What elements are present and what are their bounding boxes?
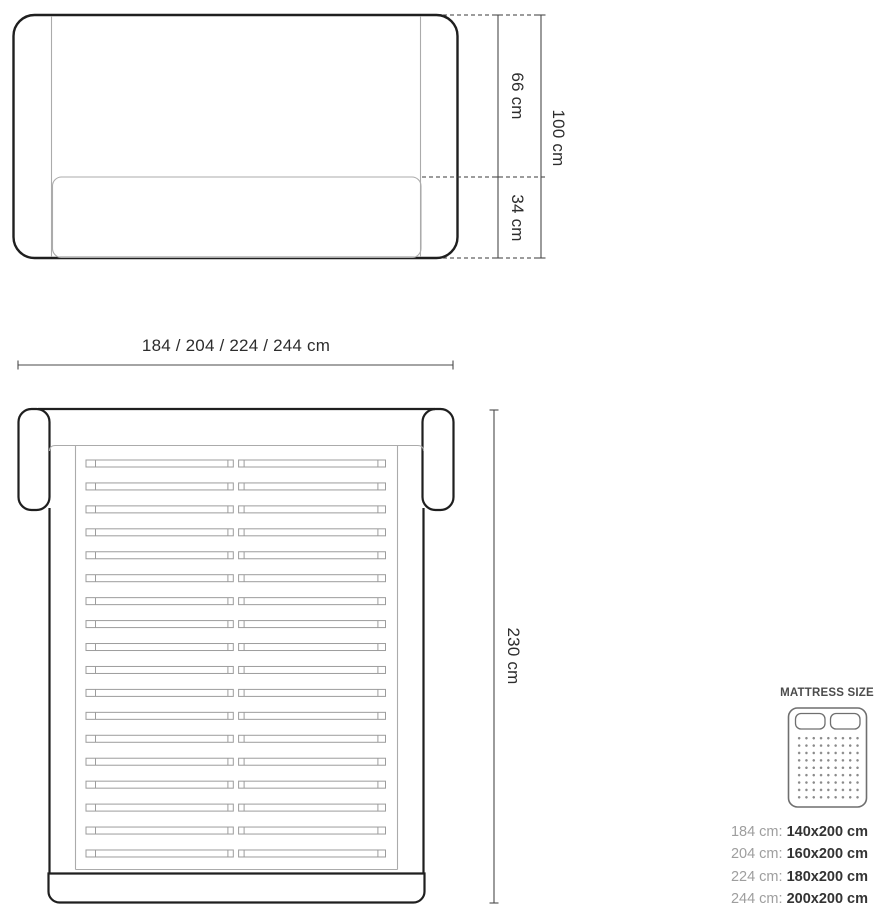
slat	[86, 552, 386, 559]
label-total-height: 100 cm	[548, 110, 568, 167]
label-base-height: 34 cm	[507, 194, 527, 241]
pillow-left	[796, 714, 826, 730]
size-row: 184 cm: 140x200 cm	[731, 821, 868, 843]
size-row: 224 cm: 180x200 cm	[731, 866, 868, 888]
top-view-dimensions	[490, 410, 499, 903]
slat	[86, 666, 386, 673]
mattress-size: 200x200 cm	[787, 891, 868, 907]
slat	[86, 804, 386, 811]
front-view-dimensions	[422, 15, 546, 258]
slat	[86, 483, 386, 490]
width-dimension	[18, 361, 453, 370]
label-bed-length: 230 cm	[503, 628, 523, 685]
slat-group	[86, 460, 386, 857]
frame-width: 204 cm:	[731, 846, 783, 862]
mattress-tufting-dots	[794, 733, 861, 802]
frame-width: 224 cm:	[731, 869, 783, 885]
mattress-size: 160x200 cm	[787, 846, 868, 862]
slat	[86, 781, 386, 788]
slat	[86, 460, 386, 467]
base-front-panel	[53, 177, 422, 258]
slat	[86, 712, 386, 719]
size-row: 244 cm: 200x200 cm	[731, 888, 868, 910]
diagram-canvas	[0, 0, 880, 920]
headboard-left-wing	[19, 409, 50, 510]
bed-dimension-diagram: 66 cm 34 cm 100 cm 230 cm 184 / 204 / 22…	[0, 0, 880, 920]
slat	[86, 850, 386, 857]
slat	[86, 598, 386, 605]
legend-title: MATTRESS SIZE	[780, 687, 874, 699]
headboard-right-wing	[423, 409, 454, 510]
mattress-size-list: 184 cm: 140x200 cm 204 cm: 160x200 cm 22…	[731, 821, 868, 911]
label-headboard-height: 66 cm	[507, 72, 527, 119]
top-view-drawing	[19, 409, 454, 903]
label-bed-widths: 184 / 204 / 224 / 244 cm	[142, 336, 330, 356]
size-row: 204 cm: 160x200 cm	[731, 843, 868, 865]
frame-width: 244 cm:	[731, 891, 783, 907]
headboard-outline	[14, 15, 458, 258]
mattress-size: 140x200 cm	[787, 824, 868, 840]
slat	[86, 621, 386, 628]
slat	[86, 689, 386, 696]
slat	[86, 529, 386, 536]
slat	[86, 575, 386, 582]
slat	[86, 758, 386, 765]
slat	[86, 644, 386, 651]
slat	[86, 735, 386, 742]
footboard-outline	[49, 874, 425, 903]
slat	[86, 506, 386, 513]
front-view-drawing	[14, 15, 458, 258]
pillow-right	[831, 714, 861, 730]
platform-head-edge	[50, 446, 424, 452]
mattress-size: 180x200 cm	[787, 869, 868, 885]
slat	[86, 827, 386, 834]
frame-width: 184 cm:	[731, 824, 783, 840]
